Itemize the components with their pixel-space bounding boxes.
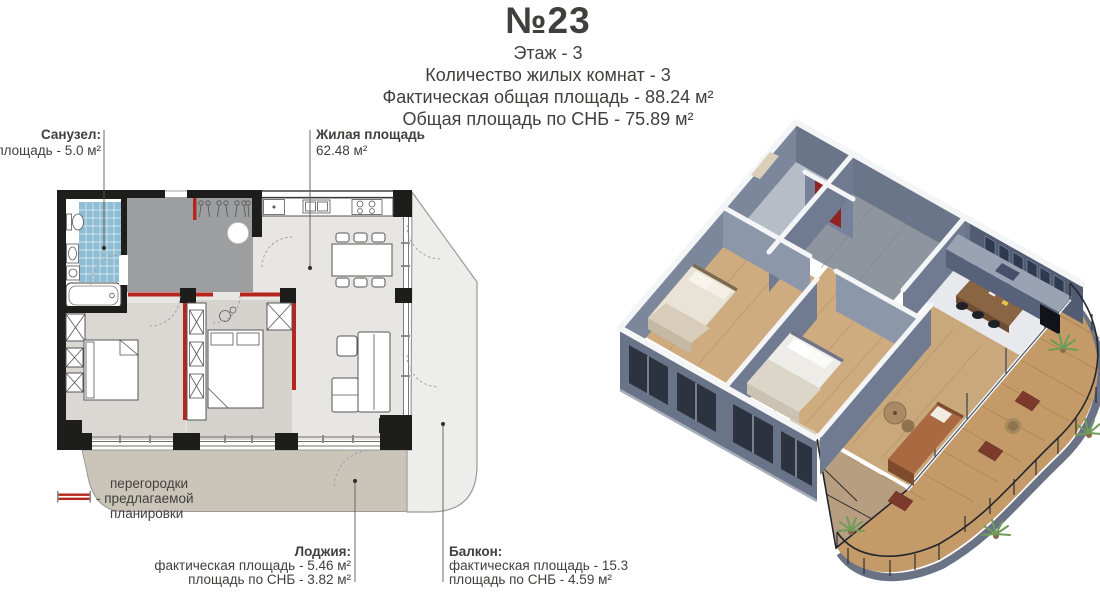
unit-number: №23 (298, 0, 798, 42)
column-circle (228, 223, 249, 244)
apartment-sheet: №23 Этаж - 3 Количество жилых комнат - 3… (0, 0, 1100, 597)
legend-line1: перегородки (110, 476, 188, 491)
living-area-label-value: 62.48 м² (316, 143, 368, 158)
plan-bathroom (57, 190, 128, 313)
washing-machine-icon (67, 266, 80, 280)
toilet-icon (67, 214, 84, 230)
tv (379, 418, 394, 433)
kitchen-counter (262, 198, 393, 216)
sink-icon (67, 244, 79, 263)
rooms-line: Количество жилых комнат - 3 (298, 64, 798, 86)
balcony-label-actual: фактическая площадь - 15.3 м² (449, 558, 630, 573)
legend-line3: планировки (110, 506, 183, 521)
bathroom-label-area: площадь - 5.0 м² (0, 143, 101, 158)
loggia-label-snb: площадь по СНБ - 3.82 м² (188, 572, 351, 587)
legend-red-swatch (59, 494, 90, 501)
render-3d (608, 108, 1100, 597)
bathroom-label-title: Санузел: (41, 127, 101, 142)
plan-balcony-area (407, 192, 477, 512)
between-beds-wardrobe (187, 303, 206, 420)
floor-line: Этаж - 3 (298, 42, 798, 64)
kitchen-sink-icon (303, 200, 330, 213)
loggia-label-actual: фактическая площадь - 5.46 м² (154, 558, 351, 573)
loggia-label-title: Лоджия: (295, 544, 351, 559)
stove-icon (352, 200, 382, 215)
legend-line2: - предлагаемой (96, 491, 194, 506)
plan-legend: перегородки - предлагаемой планировки (57, 476, 194, 521)
bed1 (84, 340, 138, 400)
dining-table (332, 233, 392, 287)
balcony-label-title: Балкон: (449, 544, 502, 559)
balcony-label-snb: площадь по СНБ - 4.59 м² (449, 572, 612, 587)
living-area-label-title: Жилая площадь (315, 127, 425, 142)
bathtub-icon (66, 283, 121, 308)
plan-kitchen-window-wall (262, 191, 393, 198)
actual-area-line: Фактическая общая площадь - 88.24 м² (298, 86, 798, 108)
floor-plan-2d: Санузел: площадь - 5.0 м² Жилая площадь … (0, 120, 630, 597)
armchair (337, 336, 357, 356)
plan-hall-floor (127, 198, 253, 292)
